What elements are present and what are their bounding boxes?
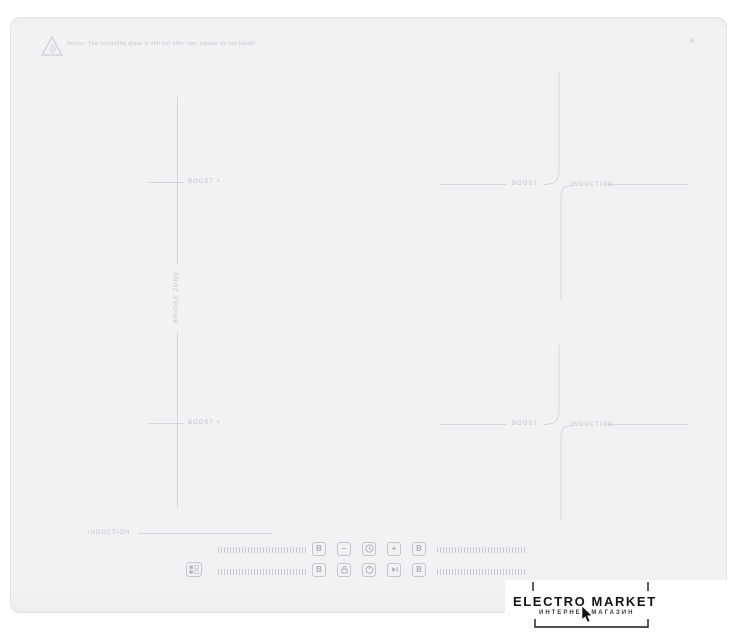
zone-label-induction-bottom-left: INDUCTION	[88, 530, 130, 536]
timer-button[interactable]	[362, 542, 376, 556]
brand-mark-icon: ✳	[688, 36, 696, 47]
zone-label-bridge-zone: BRIDGE ZONE	[174, 263, 180, 331]
zone-label-boost-top-left: BOOST +	[188, 179, 221, 185]
boost-button[interactable]: B	[312, 542, 326, 556]
warning-triangle-icon	[40, 35, 64, 58]
timer-icon	[365, 544, 374, 553]
store-watermark: ELECTRO MARKET ИНТЕРНЕТ-МАГАЗИН	[505, 580, 734, 640]
zone-label-boost-top-right: BOOST	[512, 181, 538, 187]
induction-hob-photo	[10, 17, 727, 613]
power-slider-left-row2[interactable]	[218, 569, 308, 575]
plus-button[interactable]: +	[387, 542, 401, 556]
power-slider-left-row1[interactable]	[218, 547, 308, 553]
lock-button[interactable]	[337, 563, 351, 577]
lock-icon	[340, 565, 349, 574]
boost-button[interactable]: B	[412, 542, 426, 556]
zone-label-induction-bottom-right: INDUCTION	[571, 422, 613, 428]
power-button[interactable]	[362, 563, 376, 577]
flex-zone-select-icon[interactable]	[186, 562, 202, 577]
mouse-cursor-icon	[581, 606, 594, 624]
zone-label-boost-bottom-left: BOOST +	[188, 420, 221, 426]
power-icon	[365, 565, 374, 574]
zone-label-boost-bottom-right: BOOST	[512, 421, 538, 427]
minus-button[interactable]: −	[337, 542, 351, 556]
boost-button[interactable]: B	[412, 563, 426, 577]
warning-text: Notice: The crystallite glass is still h…	[67, 41, 256, 47]
power-slider-right-row2[interactable]	[437, 569, 527, 575]
power-slider-right-row1[interactable]	[437, 547, 527, 553]
play-icon	[390, 565, 399, 574]
boost-button[interactable]: B	[312, 563, 326, 577]
pause-button[interactable]	[387, 563, 401, 577]
zone-label-induction-top-right: INDUCTION	[571, 182, 613, 188]
